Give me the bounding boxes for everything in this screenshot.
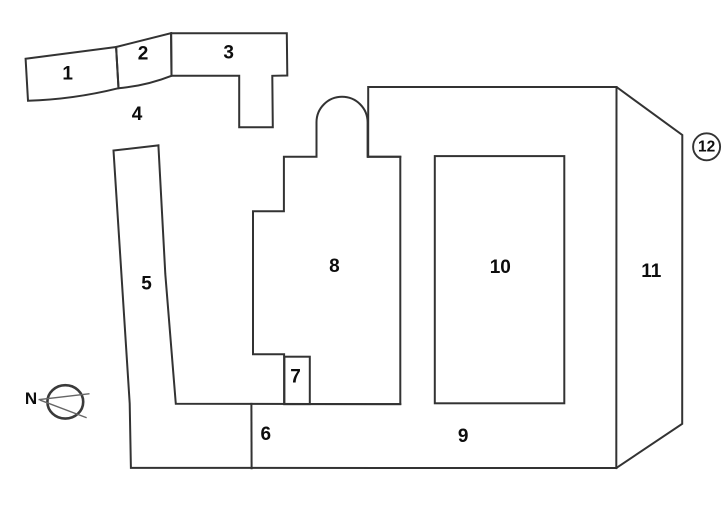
svg-text:N: N [25,389,37,408]
svg-text:8: 8 [329,256,340,277]
svg-text:3: 3 [223,43,234,64]
svg-text:2: 2 [138,44,149,65]
svg-text:4: 4 [132,104,143,125]
svg-text:5: 5 [141,274,152,295]
svg-text:1: 1 [62,63,73,84]
svg-text:10: 10 [490,257,511,278]
svg-text:9: 9 [458,426,469,447]
svg-text:6: 6 [261,424,272,445]
svg-text:11: 11 [641,261,662,282]
svg-text:7: 7 [290,367,301,388]
svg-text:12: 12 [698,139,715,156]
